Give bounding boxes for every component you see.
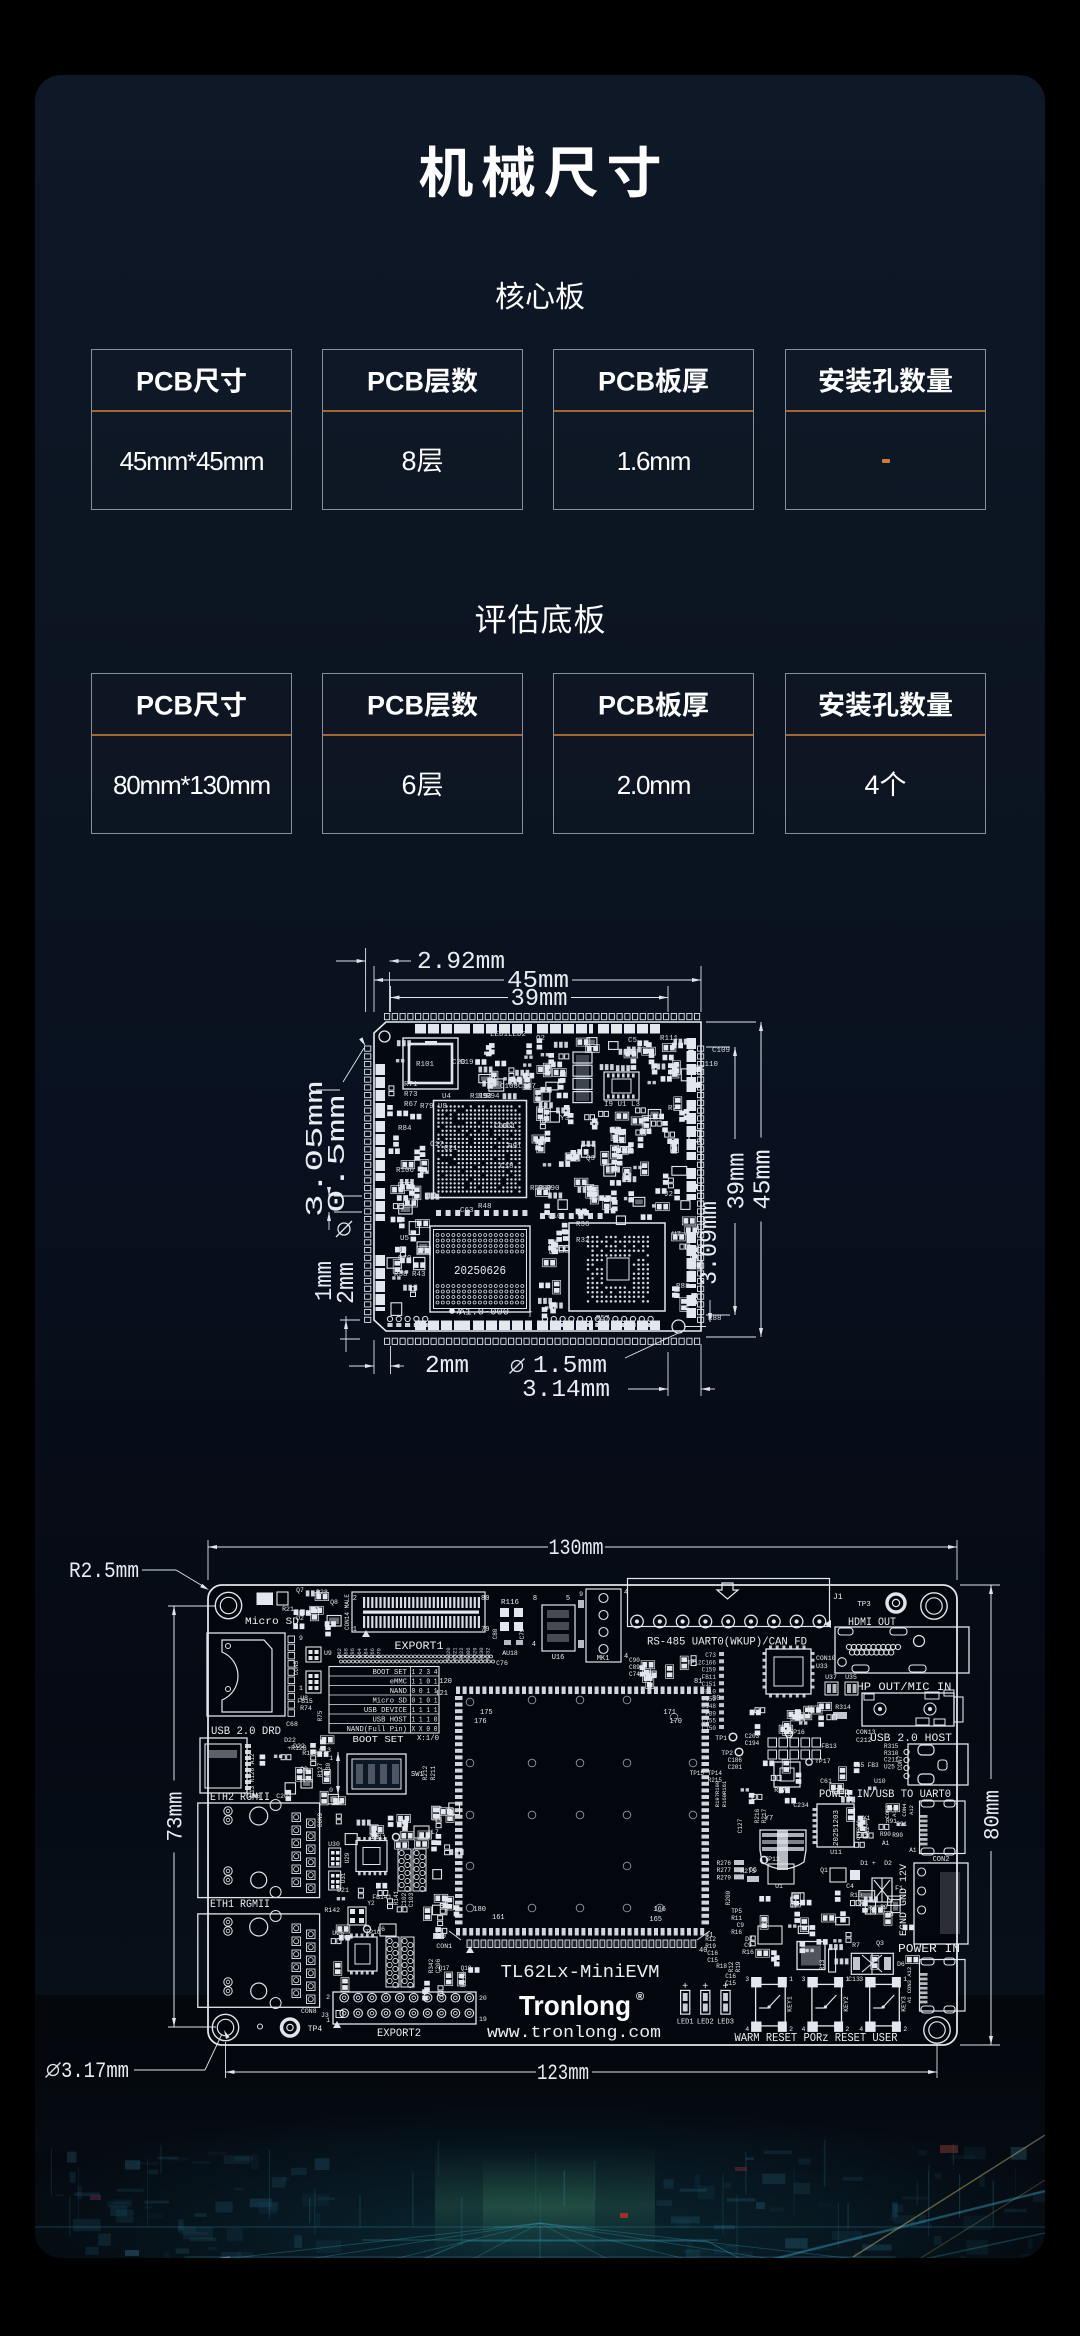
svg-text:R277: R277 xyxy=(717,1867,732,1874)
svg-text:3.14mm: 3.14mm xyxy=(522,1377,610,1404)
svg-text:R116: R116 xyxy=(501,1599,520,1607)
svg-text:CON8: CON8 xyxy=(301,2008,317,2015)
svg-text:C80: C80 xyxy=(492,1628,499,1639)
svg-text:LED3: LED3 xyxy=(717,2019,734,2027)
svg-text:PCB: PCB xyxy=(367,367,424,397)
svg-text:C155: C155 xyxy=(702,1718,717,1725)
svg-text:PCB: PCB xyxy=(136,367,193,397)
svg-text:TP5: TP5 xyxy=(731,1908,742,1915)
svg-text:1: 1 xyxy=(789,1976,793,1983)
svg-text:FB10: FB10 xyxy=(702,1689,717,1696)
svg-text:LED2: LED2 xyxy=(697,2019,714,2027)
svg-text:U30: U30 xyxy=(328,1841,340,1848)
svg-text:R12: R12 xyxy=(705,1936,716,1943)
svg-text:C102: C102 xyxy=(401,1892,408,1907)
svg-text:20251203: 20251203 xyxy=(833,1810,841,1846)
svg-text:8: 8 xyxy=(402,446,416,476)
svg-text:R18: R18 xyxy=(716,1963,727,1970)
svg-text:A1: A1 xyxy=(882,1840,890,1847)
svg-text:F1: F1 xyxy=(895,1885,903,1892)
svg-text:EXPORT2: EXPORT2 xyxy=(377,2028,421,2040)
svg-text:CON10: CON10 xyxy=(816,1655,836,1662)
svg-text:U13 R126 A12: U13 R126 A12 xyxy=(249,1753,256,1797)
svg-text:U33: U33 xyxy=(816,1663,828,1670)
svg-text:R19: R19 xyxy=(705,1943,716,1950)
svg-text:79: 79 xyxy=(481,1626,489,1634)
svg-text:+: + xyxy=(682,1982,688,1993)
svg-text:R10: R10 xyxy=(850,1892,862,1899)
svg-text:U11: U11 xyxy=(830,1849,842,1856)
svg-text:C76: C76 xyxy=(496,1660,508,1667)
svg-text:U26: U26 xyxy=(332,1930,344,1937)
svg-text:R21: R21 xyxy=(282,1606,294,1613)
svg-text:Q7: Q7 xyxy=(296,1587,304,1594)
svg-text:R2.5mm: R2.5mm xyxy=(69,1559,139,1584)
svg-text:TP17: TP17 xyxy=(815,1758,831,1765)
svg-text:U10: U10 xyxy=(874,1778,886,1785)
svg-text:4: 4 xyxy=(624,1653,628,1661)
svg-text:R11: R11 xyxy=(731,1915,742,1922)
svg-text:C9: C9 xyxy=(737,1922,745,1929)
svg-text:U9: U9 xyxy=(324,1650,332,1657)
svg-text:C13: C13 xyxy=(848,1976,860,1983)
svg-text:C204: C204 xyxy=(276,1793,292,1800)
svg-text:PCB: PCB xyxy=(367,691,424,721)
svg-text:A1: A1 xyxy=(909,1847,917,1854)
svg-text:165: 165 xyxy=(649,1916,662,1924)
svg-text:TP4: TP4 xyxy=(308,2025,323,2034)
svg-text:C159: C159 xyxy=(702,1667,717,1674)
svg-text:R332: R332 xyxy=(485,1647,492,1660)
svg-text:R7: R7 xyxy=(852,1942,860,1949)
svg-text:2mm: 2mm xyxy=(425,1353,469,1380)
svg-text:R142: R142 xyxy=(324,1907,340,1914)
svg-text:19: 19 xyxy=(479,2016,487,2023)
svg-text:C90: C90 xyxy=(629,1657,640,1664)
svg-text:U31: U31 xyxy=(340,1872,347,1883)
svg-text:C79: C79 xyxy=(519,1628,526,1639)
svg-text:R13: R13 xyxy=(819,1959,826,1970)
svg-text:TP15 TP14: TP15 TP14 xyxy=(690,1770,723,1777)
svg-text:R275: R275 xyxy=(740,1868,756,1875)
svg-text:R74: R74 xyxy=(300,1705,312,1712)
svg-text:C201: C201 xyxy=(728,1764,743,1771)
svg-text:Q13: Q13 xyxy=(319,1747,331,1754)
svg-text:U25: U25 xyxy=(884,1763,895,1770)
svg-text:R90: R90 xyxy=(892,1832,903,1839)
svg-text:LED1: LED1 xyxy=(677,2019,694,2027)
svg-text:Tronlong: Tronlong xyxy=(519,1990,631,2021)
svg-text:C151: C151 xyxy=(702,1681,717,1688)
svg-text:FB13: FB13 xyxy=(821,1743,837,1750)
svg-text:C203: C203 xyxy=(745,1733,760,1740)
svg-text:C150: C150 xyxy=(702,1725,717,1732)
svg-text:www.tronlong.com: www.tronlong.com xyxy=(487,2024,661,2043)
svg-text:3.17mm: 3.17mm xyxy=(61,2059,129,2084)
svg-text:Q3: Q3 xyxy=(876,1940,884,1947)
svg-text:9: 9 xyxy=(579,1591,583,1598)
svg-text:1.5mm: 1.5mm xyxy=(533,1353,607,1380)
svg-text:R211: R211 xyxy=(430,1765,437,1780)
svg-text:TP2: TP2 xyxy=(721,1750,733,1757)
svg-text:D22: D22 xyxy=(284,1737,296,1744)
svg-text:J1: J1 xyxy=(833,1593,843,1602)
svg-text:R12: R12 xyxy=(728,1961,735,1972)
svg-text:Q8: Q8 xyxy=(330,1599,338,1606)
svg-text:NAND(Full Pin): NAND(Full Pin) xyxy=(347,1726,407,1734)
svg-text:AU18: AU18 xyxy=(502,1650,518,1657)
svg-text:C4: C4 xyxy=(846,1883,854,1890)
svg-text:R276: R276 xyxy=(717,1860,732,1867)
svg-text:+: + xyxy=(702,1982,708,1993)
svg-text:R75: R75 xyxy=(317,1710,324,1721)
svg-text:39mm: 39mm xyxy=(724,1153,751,1210)
svg-text:Y2: Y2 xyxy=(367,1900,375,1907)
svg-text:L6: L6 xyxy=(377,1926,385,1933)
svg-text:A12: A12 xyxy=(908,1805,915,1815)
svg-text:3: 3 xyxy=(859,1976,863,1983)
svg-text:R314: R314 xyxy=(835,1704,851,1711)
svg-text:2.92mm: 2.92mm xyxy=(417,949,505,976)
svg-text:C194: C194 xyxy=(745,1740,760,1747)
svg-text:1: 1 xyxy=(353,1626,357,1634)
svg-text:C148: C148 xyxy=(702,1703,717,1710)
svg-text:161: 161 xyxy=(492,1914,505,1922)
svg-text:Micro SD: Micro SD xyxy=(245,1616,299,1628)
svg-text:L7: L7 xyxy=(431,1829,439,1836)
svg-text:3: 3 xyxy=(745,1976,749,1983)
svg-text:R279: R279 xyxy=(717,1874,732,1881)
svg-text:121: 121 xyxy=(435,1690,448,1698)
svg-text:®: ® xyxy=(636,1991,644,2003)
svg-text:C103: C103 xyxy=(408,1892,415,1907)
svg-text:R141: R141 xyxy=(393,1890,400,1905)
svg-text:2: 2 xyxy=(353,1595,357,1603)
svg-text:1: 1 xyxy=(326,2017,330,2024)
svg-text:TP3: TP3 xyxy=(857,1601,871,1609)
svg-text:0: 0 xyxy=(329,1787,333,1794)
svg-text:1: 1 xyxy=(903,1976,907,1983)
svg-text:R16: R16 xyxy=(731,1929,742,1936)
svg-text:ETH2 RGMII: ETH2 RGMII xyxy=(210,1792,270,1804)
svg-text:3.09mm: 3.09mm xyxy=(697,1201,724,1285)
svg-text:6: 6 xyxy=(402,770,416,800)
svg-text:176: 176 xyxy=(474,1718,487,1726)
svg-text:X X 0 0: X X 0 0 xyxy=(412,1726,438,1734)
svg-text:CON5: CON5 xyxy=(293,1660,300,1675)
svg-text:USB 2.0 HOST: USB 2.0 HOST xyxy=(870,1733,952,1745)
svg-text:KEY1: KEY1 xyxy=(787,1996,794,2012)
svg-text:R200: R200 xyxy=(725,1890,732,1905)
svg-text:1: 1 xyxy=(845,1976,849,1983)
svg-text:FB11: FB11 xyxy=(702,1674,717,1681)
svg-text:U16: U16 xyxy=(552,1654,565,1662)
svg-text:C73: C73 xyxy=(705,1652,716,1659)
svg-text:45mm: 45mm xyxy=(750,1150,777,1210)
svg-text:D2: D2 xyxy=(884,1860,892,1867)
svg-text:MK1: MK1 xyxy=(597,1655,610,1663)
svg-text:POWER IN: POWER IN xyxy=(898,1942,960,1956)
svg-text:C9: C9 xyxy=(744,1942,752,1949)
svg-text:80mm: 80mm xyxy=(981,1790,1006,1840)
svg-text:130mm: 130mm xyxy=(549,1536,604,1561)
svg-text:WARM RESET PORz RESET USER: WARM RESET PORz RESET USER xyxy=(735,2032,898,2045)
svg-text:CON14 MALE: CON14 MALE xyxy=(344,1594,351,1630)
svg-text:C186: C186 xyxy=(728,1757,743,1764)
svg-text:PCB: PCB xyxy=(598,367,655,397)
svg-text:Q1: Q1 xyxy=(820,1867,828,1874)
svg-text:D6: D6 xyxy=(897,1961,905,1968)
svg-text:R127: R127 xyxy=(317,1762,324,1777)
svg-text:KEY3: KEY3 xyxy=(901,1996,908,2012)
svg-text:R160R161: R160R161 xyxy=(721,1780,728,1807)
svg-text:FB15: FB15 xyxy=(297,1698,313,1705)
svg-text:C89: C89 xyxy=(629,1664,640,1671)
svg-text:PCB: PCB xyxy=(136,691,193,721)
svg-text:USB 2.0 DRD: USB 2.0 DRD xyxy=(211,1726,281,1738)
svg-text:80: 80 xyxy=(481,1595,489,1603)
svg-text:C212: C212 xyxy=(856,1737,872,1744)
svg-text:CON4: CON4 xyxy=(901,1803,908,1817)
svg-text:CON13: CON13 xyxy=(856,1729,876,1736)
svg-text:R197R198: R197R198 xyxy=(714,1781,721,1807)
svg-text:C61: C61 xyxy=(820,1778,832,1785)
svg-text:+: + xyxy=(722,1982,728,1993)
svg-text:C16: C16 xyxy=(707,1950,718,1957)
svg-text:R16: R16 xyxy=(742,1949,754,1956)
svg-text:CON1: CON1 xyxy=(436,1943,452,1950)
svg-text:20: 20 xyxy=(479,1995,487,2002)
svg-text:R90: R90 xyxy=(880,1831,891,1838)
svg-text:FB9: FB9 xyxy=(705,1710,716,1717)
svg-text:PCB: PCB xyxy=(598,691,655,721)
svg-text:1: 1 xyxy=(329,1755,333,1762)
svg-text:Y7: Y7 xyxy=(765,1815,773,1823)
svg-text:KEY2: KEY2 xyxy=(843,1996,850,2012)
svg-text:R19: R19 xyxy=(735,1961,742,1972)
svg-text:R216: R216 xyxy=(754,1808,761,1823)
svg-text:D2: D2 xyxy=(296,1615,304,1622)
svg-text:TL62Lx-MiniEVM: TL62Lx-MiniEVM xyxy=(501,1963,660,1983)
svg-text:U35: U35 xyxy=(845,1674,857,1681)
svg-text:4: 4 xyxy=(865,770,880,800)
svg-text:U37: U37 xyxy=(825,1674,837,1681)
svg-text:2: 2 xyxy=(326,1994,330,2001)
svg-text:123mm: 123mm xyxy=(537,2061,589,2086)
svg-text:5: 5 xyxy=(566,1595,570,1603)
svg-text:180: 180 xyxy=(473,1906,486,1914)
svg-text:C16: C16 xyxy=(725,1973,736,1980)
svg-text:+R128: +R128 xyxy=(287,1745,307,1752)
svg-text:TP1: TP1 xyxy=(715,1735,727,1742)
svg-text:8: 8 xyxy=(533,1595,537,1603)
svg-text:120: 120 xyxy=(439,1678,452,1686)
svg-text:R212: R212 xyxy=(422,1765,429,1780)
svg-text:Q9: Q9 xyxy=(300,1766,308,1773)
svg-text:39mm: 39mm xyxy=(511,986,568,1013)
svg-text:D1 +: D1 + xyxy=(860,1860,876,1867)
svg-text:U1: U1 xyxy=(775,1883,783,1890)
svg-text:TP11: TP11 xyxy=(370,1834,386,1841)
svg-text:ETH1 RGMII: ETH1 RGMII xyxy=(210,1899,270,1911)
svg-text:3: 3 xyxy=(801,1976,805,1983)
svg-text:73mm: 73mm xyxy=(164,1792,189,1842)
svg-text:2: 2 xyxy=(903,2026,907,2033)
svg-text:R342: R342 xyxy=(428,1958,435,1973)
svg-text:R130: R130 xyxy=(325,1762,332,1777)
svg-text:D21: D21 xyxy=(337,1887,349,1894)
svg-text:EXPORT1: EXPORT1 xyxy=(395,1641,444,1653)
svg-text:CON9: CON9 xyxy=(317,1812,324,1827)
svg-text:POWER IN/USB TO UART0: POWER IN/USB TO UART0 xyxy=(819,1789,951,1801)
svg-text:4: 4 xyxy=(532,1641,536,1649)
svg-text:BOOT SET: BOOT SET xyxy=(353,1734,404,1745)
svg-text:C68: C68 xyxy=(286,1721,298,1728)
svg-text:9: 9 xyxy=(299,1635,303,1642)
svg-text:C206: C206 xyxy=(435,1958,442,1973)
svg-text:X:1/0: X:1/0 xyxy=(417,1735,439,1743)
svg-text:2mm: 2mm xyxy=(334,1262,361,1304)
svg-text:U29: U29 xyxy=(344,1852,351,1863)
svg-text:C153: C153 xyxy=(702,1696,717,1703)
svg-text:175: 175 xyxy=(480,1709,493,1717)
svg-text:FB141: FB141 xyxy=(372,1894,392,1901)
svg-text:1: 1 xyxy=(299,1685,303,1692)
svg-text:C127: C127 xyxy=(737,1818,744,1833)
